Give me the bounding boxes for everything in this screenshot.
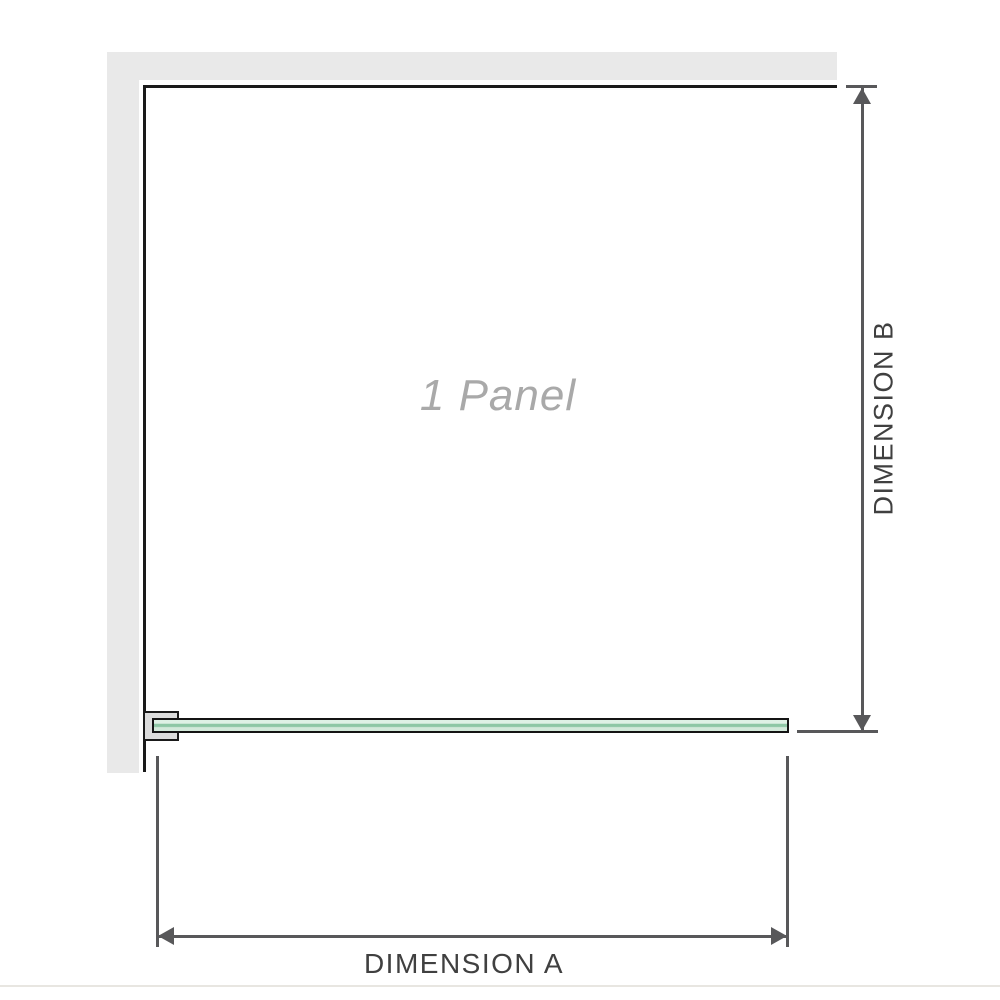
dimension-a-line — [159, 935, 787, 938]
dimension-a-label: DIMENSION A — [364, 948, 564, 980]
wall-left — [107, 52, 139, 773]
dimension-a-left-extension-line — [156, 756, 159, 947]
panel-dimension-diagram: 1 Panel DIMENSION B DIMENSION A — [0, 0, 1000, 1000]
dimension-b-bottom-tick — [797, 730, 878, 733]
arrow-down-icon — [853, 715, 871, 731]
panel-count-label: 1 Panel — [420, 371, 576, 421]
arrow-left-icon — [158, 927, 174, 945]
dimension-a-right-extension-line — [786, 756, 789, 947]
dimension-b-label: DIMENSION B — [869, 320, 900, 515]
arrow-right-icon — [771, 927, 787, 945]
panel-frame-top-line — [143, 85, 837, 88]
glass-panel — [152, 718, 789, 733]
bottom-divider — [0, 985, 1000, 987]
dimension-b-line — [861, 88, 864, 732]
wall-top — [107, 52, 837, 80]
panel-frame-left-line — [143, 85, 146, 772]
